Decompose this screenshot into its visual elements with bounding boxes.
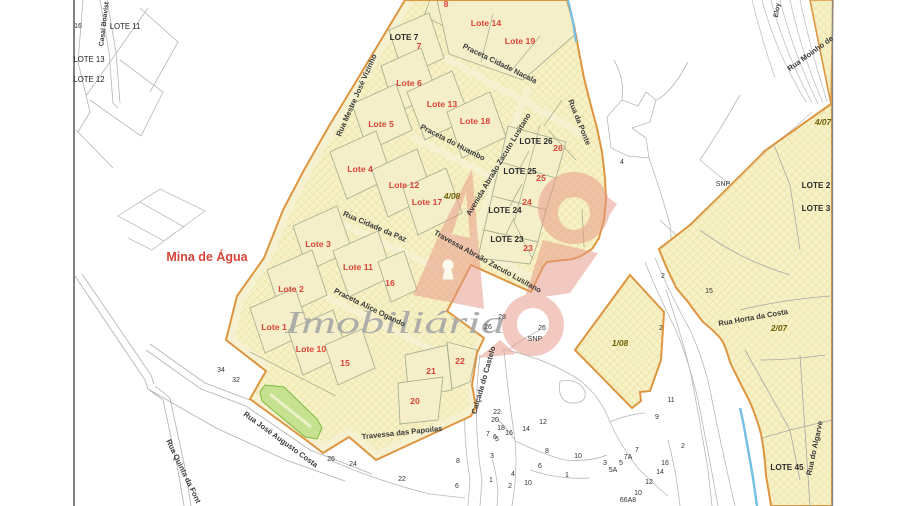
svg-text:Lote 1: Lote 1 — [261, 322, 287, 332]
svg-text:16: 16 — [661, 460, 669, 467]
svg-text:LOTE 13: LOTE 13 — [73, 55, 104, 64]
svg-text:LOTE 2: LOTE 2 — [802, 181, 831, 190]
svg-text:2: 2 — [661, 273, 665, 280]
svg-text:16: 16 — [74, 23, 82, 30]
svg-text:7: 7 — [635, 447, 639, 454]
svg-text:8: 8 — [545, 448, 549, 455]
svg-text:8: 8 — [444, 0, 449, 9]
svg-text:1: 1 — [489, 477, 493, 484]
svg-text:11: 11 — [667, 397, 674, 404]
svg-text:9: 9 — [655, 414, 659, 421]
svg-text:26: 26 — [553, 143, 563, 153]
svg-text:12: 12 — [645, 479, 653, 486]
svg-text:Lote 3: Lote 3 — [305, 239, 331, 249]
svg-text:16: 16 — [505, 430, 513, 437]
svg-text:10: 10 — [524, 480, 532, 487]
svg-text:Lote 4: Lote 4 — [347, 164, 373, 174]
svg-text:10: 10 — [574, 453, 582, 460]
svg-text:34: 34 — [217, 367, 225, 374]
svg-text:14: 14 — [522, 426, 530, 433]
svg-text:16: 16 — [385, 278, 395, 288]
svg-text:2/07: 2/07 — [770, 323, 788, 333]
svg-text:23: 23 — [523, 243, 533, 253]
svg-text:28: 28 — [498, 314, 506, 321]
svg-text:LOTE 24: LOTE 24 — [488, 206, 522, 215]
svg-text:22: 22 — [455, 356, 465, 366]
svg-text:4: 4 — [511, 471, 515, 478]
svg-text:LOTE 45: LOTE 45 — [770, 463, 804, 472]
svg-text:3: 3 — [490, 453, 494, 460]
svg-text:LOTE 12: LOTE 12 — [73, 75, 104, 84]
svg-text:Lote 5: Lote 5 — [368, 119, 394, 129]
svg-text:12: 12 — [539, 419, 547, 426]
svg-text:Lote 18: Lote 18 — [460, 116, 491, 126]
svg-text:7A: 7A — [624, 454, 633, 461]
svg-text:15: 15 — [340, 358, 350, 368]
svg-text:LOTE 3: LOTE 3 — [802, 204, 831, 213]
svg-text:25: 25 — [536, 173, 546, 183]
svg-text:SNP: SNP — [716, 181, 731, 188]
svg-text:66A8: 66A8 — [620, 497, 636, 504]
svg-text:7: 7 — [486, 431, 490, 438]
svg-text:2: 2 — [508, 483, 512, 490]
svg-text:Lote 11: Lote 11 — [343, 262, 373, 272]
svg-text:4: 4 — [620, 159, 624, 166]
svg-text:Lote 2: Lote 2 — [278, 284, 304, 294]
svg-text:26: 26 — [538, 325, 546, 332]
svg-text:22: 22 — [493, 409, 501, 416]
svg-text:Lote 12: Lote 12 — [389, 180, 420, 190]
svg-text:Lote 17: Lote 17 — [412, 197, 443, 207]
svg-text:15: 15 — [705, 288, 713, 295]
svg-text:6: 6 — [538, 463, 542, 470]
svg-text:20: 20 — [410, 396, 420, 406]
svg-text:2: 2 — [681, 443, 685, 450]
svg-text:10: 10 — [634, 490, 642, 497]
svg-text:LOTE 23: LOTE 23 — [490, 235, 524, 244]
svg-text:26: 26 — [484, 324, 492, 331]
svg-text:26: 26 — [327, 456, 335, 463]
svg-text:2: 2 — [659, 325, 663, 332]
svg-text:Lote 14: Lote 14 — [471, 18, 502, 28]
svg-text:1/08: 1/08 — [612, 338, 629, 348]
svg-text:4/07: 4/07 — [814, 117, 832, 127]
svg-text:LOTE 25: LOTE 25 — [503, 167, 537, 176]
svg-text:3: 3 — [603, 460, 607, 467]
svg-text:1: 1 — [565, 472, 569, 479]
svg-text:24: 24 — [349, 461, 357, 468]
svg-text:20: 20 — [491, 417, 499, 424]
svg-text:22: 22 — [398, 476, 406, 483]
svg-text:7: 7 — [417, 41, 422, 51]
svg-text:5A: 5A — [609, 467, 618, 474]
svg-text:LOTE 7: LOTE 7 — [390, 33, 419, 42]
svg-text:5: 5 — [619, 460, 623, 467]
svg-text:4/08: 4/08 — [443, 191, 461, 201]
svg-text:LOTE 11: LOTE 11 — [110, 22, 141, 31]
svg-text:Lote 10: Lote 10 — [296, 344, 327, 354]
svg-text:18: 18 — [497, 425, 505, 432]
svg-text:21: 21 — [426, 366, 436, 376]
svg-text:32: 32 — [232, 377, 240, 384]
svg-text:Lote 6: Lote 6 — [396, 78, 422, 88]
svg-text:8: 8 — [456, 458, 460, 465]
svg-text:6: 6 — [455, 483, 459, 490]
svg-text:Lote 13: Lote 13 — [427, 99, 458, 109]
svg-text:Lote 19: Lote 19 — [505, 36, 536, 46]
svg-text:24: 24 — [522, 197, 532, 207]
svg-text:Mina de Água: Mina de Água — [166, 249, 248, 264]
svg-text:6: 6 — [493, 434, 497, 441]
svg-text:LOTE 26: LOTE 26 — [519, 137, 553, 146]
svg-text:SNP: SNP — [528, 336, 543, 343]
svg-text:14: 14 — [656, 469, 664, 476]
